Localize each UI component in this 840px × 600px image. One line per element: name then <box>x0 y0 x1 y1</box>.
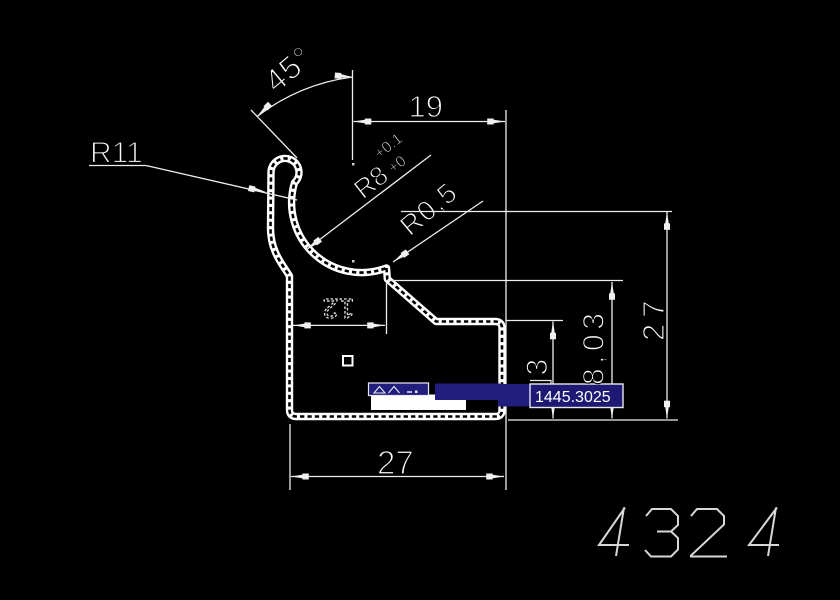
svg-text:3: 3 <box>521 359 554 376</box>
svg-text:12: 12 <box>322 293 354 324</box>
svg-text:27: 27 <box>377 444 414 481</box>
svg-text:R11: R11 <box>90 137 143 170</box>
svg-text:27: 27 <box>636 295 671 341</box>
svg-text:19: 19 <box>409 89 443 124</box>
svg-text:8,03: 8,03 <box>578 309 611 385</box>
svg-text:1445.3025: 1445.3025 <box>535 389 611 406</box>
